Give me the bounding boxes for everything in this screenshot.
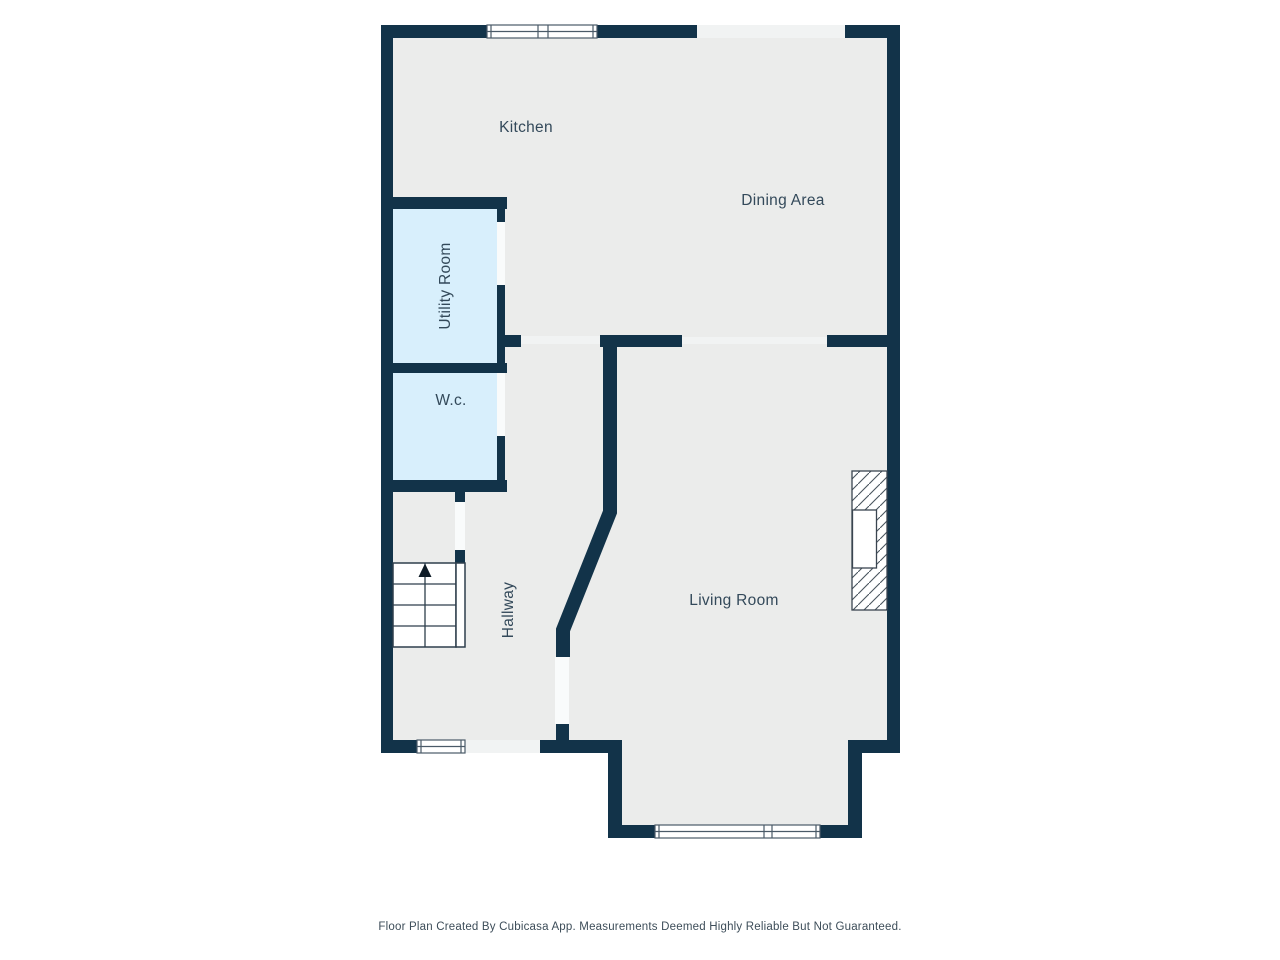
fireplace [852,471,887,610]
bay-floor [622,740,848,825]
wall-left [381,25,393,753]
door-kitchen-hallway [521,336,600,344]
room-label-hallway: Hallway [500,582,518,638]
room-label-living: Living Room [689,592,778,610]
floor-plan-drawing [0,0,1280,960]
door-front [465,740,540,753]
room-label-kitchen: Kitchen [499,119,553,137]
footer-disclaimer: Floor Plan Created By Cubicasa App. Meas… [378,921,901,933]
door-utility [497,222,505,285]
wall-bay-right [848,740,862,838]
wall-entry-stub-bottom [455,550,465,563]
opening-dining-top [697,25,845,38]
window-living [655,825,820,838]
wall-entry-stub-top [455,492,465,502]
floor-plan-page: Kitchen Dining Area Utility Room W.c. Ha… [0,0,1280,960]
fireplace-recess [853,510,877,568]
opening-dining-living [682,337,827,344]
wall-kitchen-bottom-a [497,335,521,347]
room-label-wc: W.c. [435,392,466,410]
door-hallway-living [555,657,569,724]
wall-dining-bottom [827,335,887,347]
window-hallway [417,740,465,753]
wall-hallway-living-stub [556,724,569,753]
wall-wc-hallway [381,480,507,492]
stairs-stringer [456,563,465,647]
room-label-utility: Utility Room [437,242,455,329]
window-kitchen [487,25,597,38]
stairs [393,563,465,647]
wall-utility-wc [381,363,507,373]
wall-right [887,25,900,753]
room-label-dining: Dining Area [741,192,824,210]
wc-floor [393,373,497,480]
door-entry [455,502,465,550]
wall-kitchen-utility [381,197,507,209]
door-wc [497,373,505,436]
